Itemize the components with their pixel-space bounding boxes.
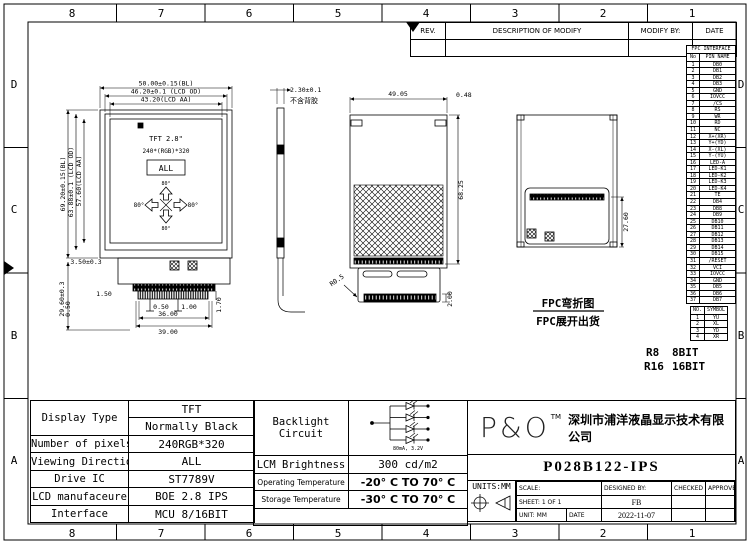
svg-text:80°: 80° xyxy=(161,181,170,187)
fpc-pin-row: 9WR xyxy=(687,113,735,120)
fpc-pin-row: 33IOVCC xyxy=(687,270,735,277)
operating-temperature-label: Operating Temperature xyxy=(254,474,349,491)
unfolded-view-linework xyxy=(344,97,460,302)
checked-by-value xyxy=(672,496,706,509)
description-header: DESCRIPTION OF MODIFY xyxy=(446,23,629,40)
display-type-label: Display Type xyxy=(31,401,129,436)
display-type-value-1: TFT xyxy=(129,401,255,418)
svg-text:C: C xyxy=(738,203,745,216)
svg-text:80°: 80° xyxy=(134,202,145,209)
svg-text:R8: R8 xyxy=(646,346,659,359)
svg-text:0.50: 0.50 xyxy=(64,301,72,317)
side-view-labels: 2.30±0.1 不含背胶 xyxy=(290,86,321,105)
svg-text:ALL: ALL xyxy=(159,164,174,173)
fpc-pin-row: 24DB9 xyxy=(687,211,735,218)
led-circuit-icon: 80mA, 3.2V xyxy=(350,401,467,451)
svg-text:D: D xyxy=(738,78,745,91)
storage-temperature-value: -30° C TO 70° C xyxy=(349,491,468,509)
spec-table-right: Backlight Circuit xyxy=(253,400,468,526)
approval-grid: SCALE: DESIGNED BY: CHECKED BY: APPROVED… xyxy=(516,481,735,521)
touch-symbol-table: NO.SYMBOL 1YU 2XL 3YD 4XR xyxy=(690,306,728,341)
fpc-pin-row: 7/CS xyxy=(687,100,735,107)
engineering-drawing-sheet: 87 65 43 21 87 65 43 21 DC BA DC BA xyxy=(0,0,750,544)
approved-by-label: APPROVED BY: xyxy=(706,482,735,496)
lcd-manufacturer-value: BOE 2.8 IPS xyxy=(129,488,255,506)
svg-text:39.00: 39.00 xyxy=(158,328,178,336)
svg-text:8: 8 xyxy=(69,527,76,540)
pixels-value: 240RGB*320 xyxy=(129,436,255,453)
unit-label: UNIT: MM xyxy=(516,509,566,522)
svg-text:3: 3 xyxy=(512,7,519,20)
fpc-pin-list: 1DB0 2DB1 3DB2 4DB3 5GND xyxy=(687,61,735,303)
svg-text:A: A xyxy=(738,454,745,467)
svg-text:1.50: 1.50 xyxy=(96,290,112,298)
fpc-pin-row: 28DB13 xyxy=(687,237,735,244)
fpc-pin-row: 5GND xyxy=(687,87,735,94)
fpc-pin-row: 14X-(XL) xyxy=(687,146,735,153)
svg-text:2.00: 2.00 xyxy=(446,291,454,307)
designed-by-label: DESIGNED BY: xyxy=(602,482,672,496)
svg-text:7: 7 xyxy=(158,7,165,20)
lcd-manufacturer-label: LCD manufaceure xyxy=(31,488,129,506)
front-view-linework xyxy=(66,86,232,330)
viewing-direction-value: ALL xyxy=(129,453,255,471)
svg-text:6: 6 xyxy=(246,527,253,540)
units-label: UNITS:MM xyxy=(468,482,515,491)
svg-text:6: 6 xyxy=(246,7,253,20)
fpc-pin-row: 17LED-K1 xyxy=(687,165,735,172)
fpc-pin-row: 23DB8 xyxy=(687,205,735,212)
fpc-interface-title: FPC INTERFACE xyxy=(687,46,735,54)
svg-text:5: 5 xyxy=(335,527,342,540)
fpc-pin-row: 6IOVCC xyxy=(687,93,735,100)
company-header: P&O TM 深圳市浦洋液晶显示技术有限公司 xyxy=(468,401,735,455)
svg-text:7: 7 xyxy=(158,527,165,540)
rev-header: REV. xyxy=(411,23,446,40)
fpc-pin-row: 16LED-A xyxy=(687,159,735,166)
part-number: P028B122-IPS xyxy=(468,455,735,481)
svg-text:49.05: 49.05 xyxy=(388,90,408,98)
lcm-brightness-value: 300 cd/m2 xyxy=(349,456,468,474)
fpc-pin-row: 26DB11 xyxy=(687,224,735,231)
fpc-pin-row: 27DB12 xyxy=(687,231,735,238)
fpc-pin-row: 36DB6 xyxy=(687,290,735,297)
fpc-pin-row: 25DB10 xyxy=(687,218,735,225)
fpc-pin-row: 11NC xyxy=(687,126,735,133)
svg-text:80°: 80° xyxy=(188,202,199,209)
lcm-brightness-label: LCM Brightness xyxy=(254,456,349,474)
side-view-linework xyxy=(270,88,305,312)
fpc-pin-row: 30DB15 xyxy=(687,250,735,257)
viewing-direction-label: Viewing Direction xyxy=(31,453,129,471)
svg-text:8: 8 xyxy=(69,7,76,20)
svg-text:A: A xyxy=(11,454,18,467)
svg-text:1.00: 1.00 xyxy=(181,303,197,311)
backlight-circuit-label: Backlight Circuit xyxy=(254,401,349,456)
fpc-pin-row: 31/RESET xyxy=(687,257,735,264)
svg-text:TFT 2.8": TFT 2.8" xyxy=(149,135,183,143)
svg-text:1.70: 1.70 xyxy=(215,297,223,313)
date-header: DATE xyxy=(693,23,737,40)
fpc-pin-row: 8RS xyxy=(687,106,735,113)
fpc-pin-row: 20LED-K4 xyxy=(687,185,735,192)
touch-symbol-list: 1YU 2XL 3YD 4XR xyxy=(691,314,727,340)
svg-text:80mA, 3.2V: 80mA, 3.2V xyxy=(392,446,422,451)
drive-ic-label: Drive IC xyxy=(31,471,129,488)
fpc-pin-row: 13Y+(YD) xyxy=(687,139,735,146)
fpc-unfolded-caption: FPC展开出货 xyxy=(536,314,600,328)
svg-text:63.88±0.1 (LCD OD): 63.88±0.1 (LCD OD) xyxy=(67,147,75,217)
fpc-pin-row: 22DB4 xyxy=(687,198,735,205)
fpc-pin-row: 19LED-K3 xyxy=(687,178,735,185)
fpc-pin-row: 18LED-K2 xyxy=(687,172,735,179)
svg-text:2: 2 xyxy=(600,7,607,20)
display-type-value-2: Normally Black xyxy=(129,418,255,436)
date-value: 2022-11-07 xyxy=(602,509,672,522)
fpc-interface-header: NoPIN NAME xyxy=(687,54,735,61)
description-cell-empty xyxy=(446,40,629,57)
units-cell: UNITS:MM xyxy=(468,481,516,521)
fpc-pin-row: 2DB1 xyxy=(687,67,735,74)
svg-text:R16: R16 xyxy=(644,360,664,373)
backlight-circuit-diagram: 80mA, 3.2V xyxy=(349,401,468,456)
svg-text:4: 4 xyxy=(423,527,430,540)
pixels-label: Number of pixels xyxy=(31,436,129,453)
fpc-pin-row: 37DB7 xyxy=(687,296,735,303)
touch-symbol-header: NO.SYMBOL xyxy=(691,307,727,314)
checked-date-empty xyxy=(672,509,706,522)
approved-by-value xyxy=(706,496,735,509)
svg-text:16BIT: 16BIT xyxy=(672,360,705,373)
company-logo: P&O xyxy=(480,411,550,444)
svg-text:8BIT: 8BIT xyxy=(672,346,699,359)
svg-text:B: B xyxy=(738,329,745,342)
svg-text:57.60(LCD AA): 57.60(LCD AA) xyxy=(75,156,83,207)
approved-date-empty xyxy=(706,509,735,522)
drive-ic-value: ST7789V xyxy=(129,471,255,488)
title-block: P&O TM 深圳市浦洋液晶显示技术有限公司 P028B122-IPS UNIT… xyxy=(467,400,736,522)
svg-text:2.30±0.1: 2.30±0.1 xyxy=(290,86,321,94)
spec-table-left: Display Type TFT Normally Black Number o… xyxy=(30,400,255,523)
svg-text:27.60: 27.60 xyxy=(622,212,630,232)
touch-symbol-row: 2XL xyxy=(691,320,727,327)
fpc-pin-row: 15Y-(YU) xyxy=(687,152,735,159)
fpc-interface-table: FPC INTERFACE NoPIN NAME 1DB0 2DB1 3DB2 … xyxy=(686,45,736,304)
modify-by-cell-empty xyxy=(629,40,693,57)
rev-cell-empty xyxy=(411,40,446,57)
spec-empty-row xyxy=(254,509,468,526)
svg-text:43.20(LCD AA): 43.20(LCD AA) xyxy=(141,96,192,104)
touch-symbol-row: 1YU xyxy=(691,314,727,321)
svg-text:50.00±0.15(BL): 50.00±0.15(BL) xyxy=(139,80,194,88)
svg-text:不含背胶: 不含背胶 xyxy=(290,96,318,105)
folded-view-labels: 27.60 FPC弯折图 FPC展开出货 xyxy=(533,212,630,328)
touch-symbol-row: 3YD xyxy=(691,327,727,334)
svg-text:3: 3 xyxy=(512,527,519,540)
svg-text:46.20±0.1 (LCD OD): 46.20±0.1 (LCD OD) xyxy=(131,88,201,96)
fpc-pin-row: 35DB5 xyxy=(687,283,735,290)
fpc-pin-row: 29DB14 xyxy=(687,244,735,251)
fpc-pin-row: 34GND xyxy=(687,277,735,284)
designer-initials: FB xyxy=(602,496,672,509)
svg-text:1: 1 xyxy=(689,7,696,20)
trademark-symbol: TM xyxy=(551,413,561,421)
svg-text:3.50±0.3: 3.50±0.3 xyxy=(70,258,101,266)
fpc-pin-row: 21TE xyxy=(687,191,735,198)
storage-temperature-label: Storage Temperature xyxy=(254,491,349,509)
bit-mode-note: R8 8BIT R16 16BIT xyxy=(644,346,705,373)
svg-text:D: D xyxy=(11,78,18,91)
fpc-pin-row: 3DB2 xyxy=(687,74,735,81)
svg-text:0.48: 0.48 xyxy=(456,91,472,99)
svg-text:69.20±0.15(BL): 69.20±0.15(BL) xyxy=(59,157,67,212)
folded-view-linework xyxy=(517,115,624,247)
fpc-pin-row: 1DB0 xyxy=(687,61,735,68)
fpc-pin-row: 12X+(XR) xyxy=(687,133,735,140)
fpc-pin-row: 32VCI xyxy=(687,264,735,271)
fpc-folded-caption: FPC弯折图 xyxy=(542,296,595,310)
interface-label: Interface xyxy=(31,506,129,523)
interface-value: MCU 8/16BIT xyxy=(129,506,255,523)
projection-symbol-icon xyxy=(468,491,514,515)
svg-text:5: 5 xyxy=(335,7,342,20)
scale-label: SCALE: xyxy=(516,482,601,496)
operating-temperature-value: -20° C TO 70° C xyxy=(349,474,468,491)
svg-text:C: C xyxy=(11,203,18,216)
date-label: DATE xyxy=(566,509,601,522)
fpc-pin-row: 4DB3 xyxy=(687,80,735,87)
svg-text:68.25: 68.25 xyxy=(457,180,465,200)
svg-text:2: 2 xyxy=(600,527,607,540)
svg-text:80°: 80° xyxy=(161,226,170,232)
svg-text:36.00: 36.00 xyxy=(158,310,178,318)
sheet-label: SHEET: 1 OF 1 xyxy=(516,496,601,509)
svg-text:B: B xyxy=(11,329,18,342)
svg-text:1: 1 xyxy=(689,527,696,540)
fpc-pin-row: 10RD xyxy=(687,119,735,126)
svg-text:240*(RGB)*320: 240*(RGB)*320 xyxy=(143,148,190,155)
svg-text:4: 4 xyxy=(423,7,430,20)
touch-symbol-row: 4XR xyxy=(691,333,727,340)
company-name: 深圳市浦洋液晶显示技术有限公司 xyxy=(568,411,735,445)
modify-by-header: MODIFY BY: xyxy=(629,23,693,40)
checked-by-label: CHECKED BY: xyxy=(672,482,706,496)
svg-text:R0.5: R0.5 xyxy=(328,273,345,289)
